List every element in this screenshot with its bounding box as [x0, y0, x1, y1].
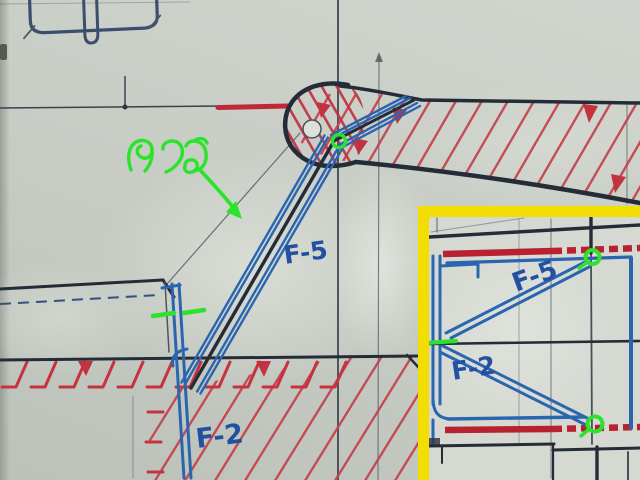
red-datum-segment: [218, 106, 287, 108]
vertical-center-line: [378, 57, 379, 480]
bracket-slot: [83, 0, 98, 43]
corner-tick: [24, 26, 35, 38]
inset-border-left: [418, 206, 429, 480]
arrowhead-up-icon: [375, 52, 383, 62]
hatch-edge-ticks: [146, 412, 163, 472]
upper-member-label: F-5: [282, 235, 330, 270]
photo-of-technical-drawing: ลวด F-5 F-2: [0, 0, 640, 480]
inset-red-band-bottom: [445, 429, 553, 430]
paper-edge-mark: [0, 44, 7, 60]
lower-member-label: F-2: [194, 418, 245, 455]
inset-fitting-block: [428, 438, 440, 445]
hatch-foot-mark: [118, 362, 143, 387]
inset-bottom-spar-line: [429, 444, 554, 446]
inset-bottom-chord: [448, 417, 584, 419]
top-left-bracket-part: [22, 0, 161, 45]
inset-border-top: [418, 206, 640, 217]
green-tick-mark: [153, 313, 174, 316]
bracket-outline: [29, 0, 158, 33]
drawing-canvas: ลวด F-5 F-2: [0, 0, 640, 480]
light-patch: [332, 167, 432, 363]
green-tick-mark: [426, 341, 456, 343]
inset-red-band-top: [443, 251, 553, 254]
datum-node: [123, 105, 128, 110]
green-tick-mark: [184, 310, 204, 313]
corner-tick: [149, 16, 160, 28]
datum-line: [0, 106, 222, 108]
photo-edge-shadow: [0, 0, 10, 480]
inset-detail-view: F-5 F-2: [418, 206, 640, 480]
hinge-hole: [303, 120, 321, 138]
